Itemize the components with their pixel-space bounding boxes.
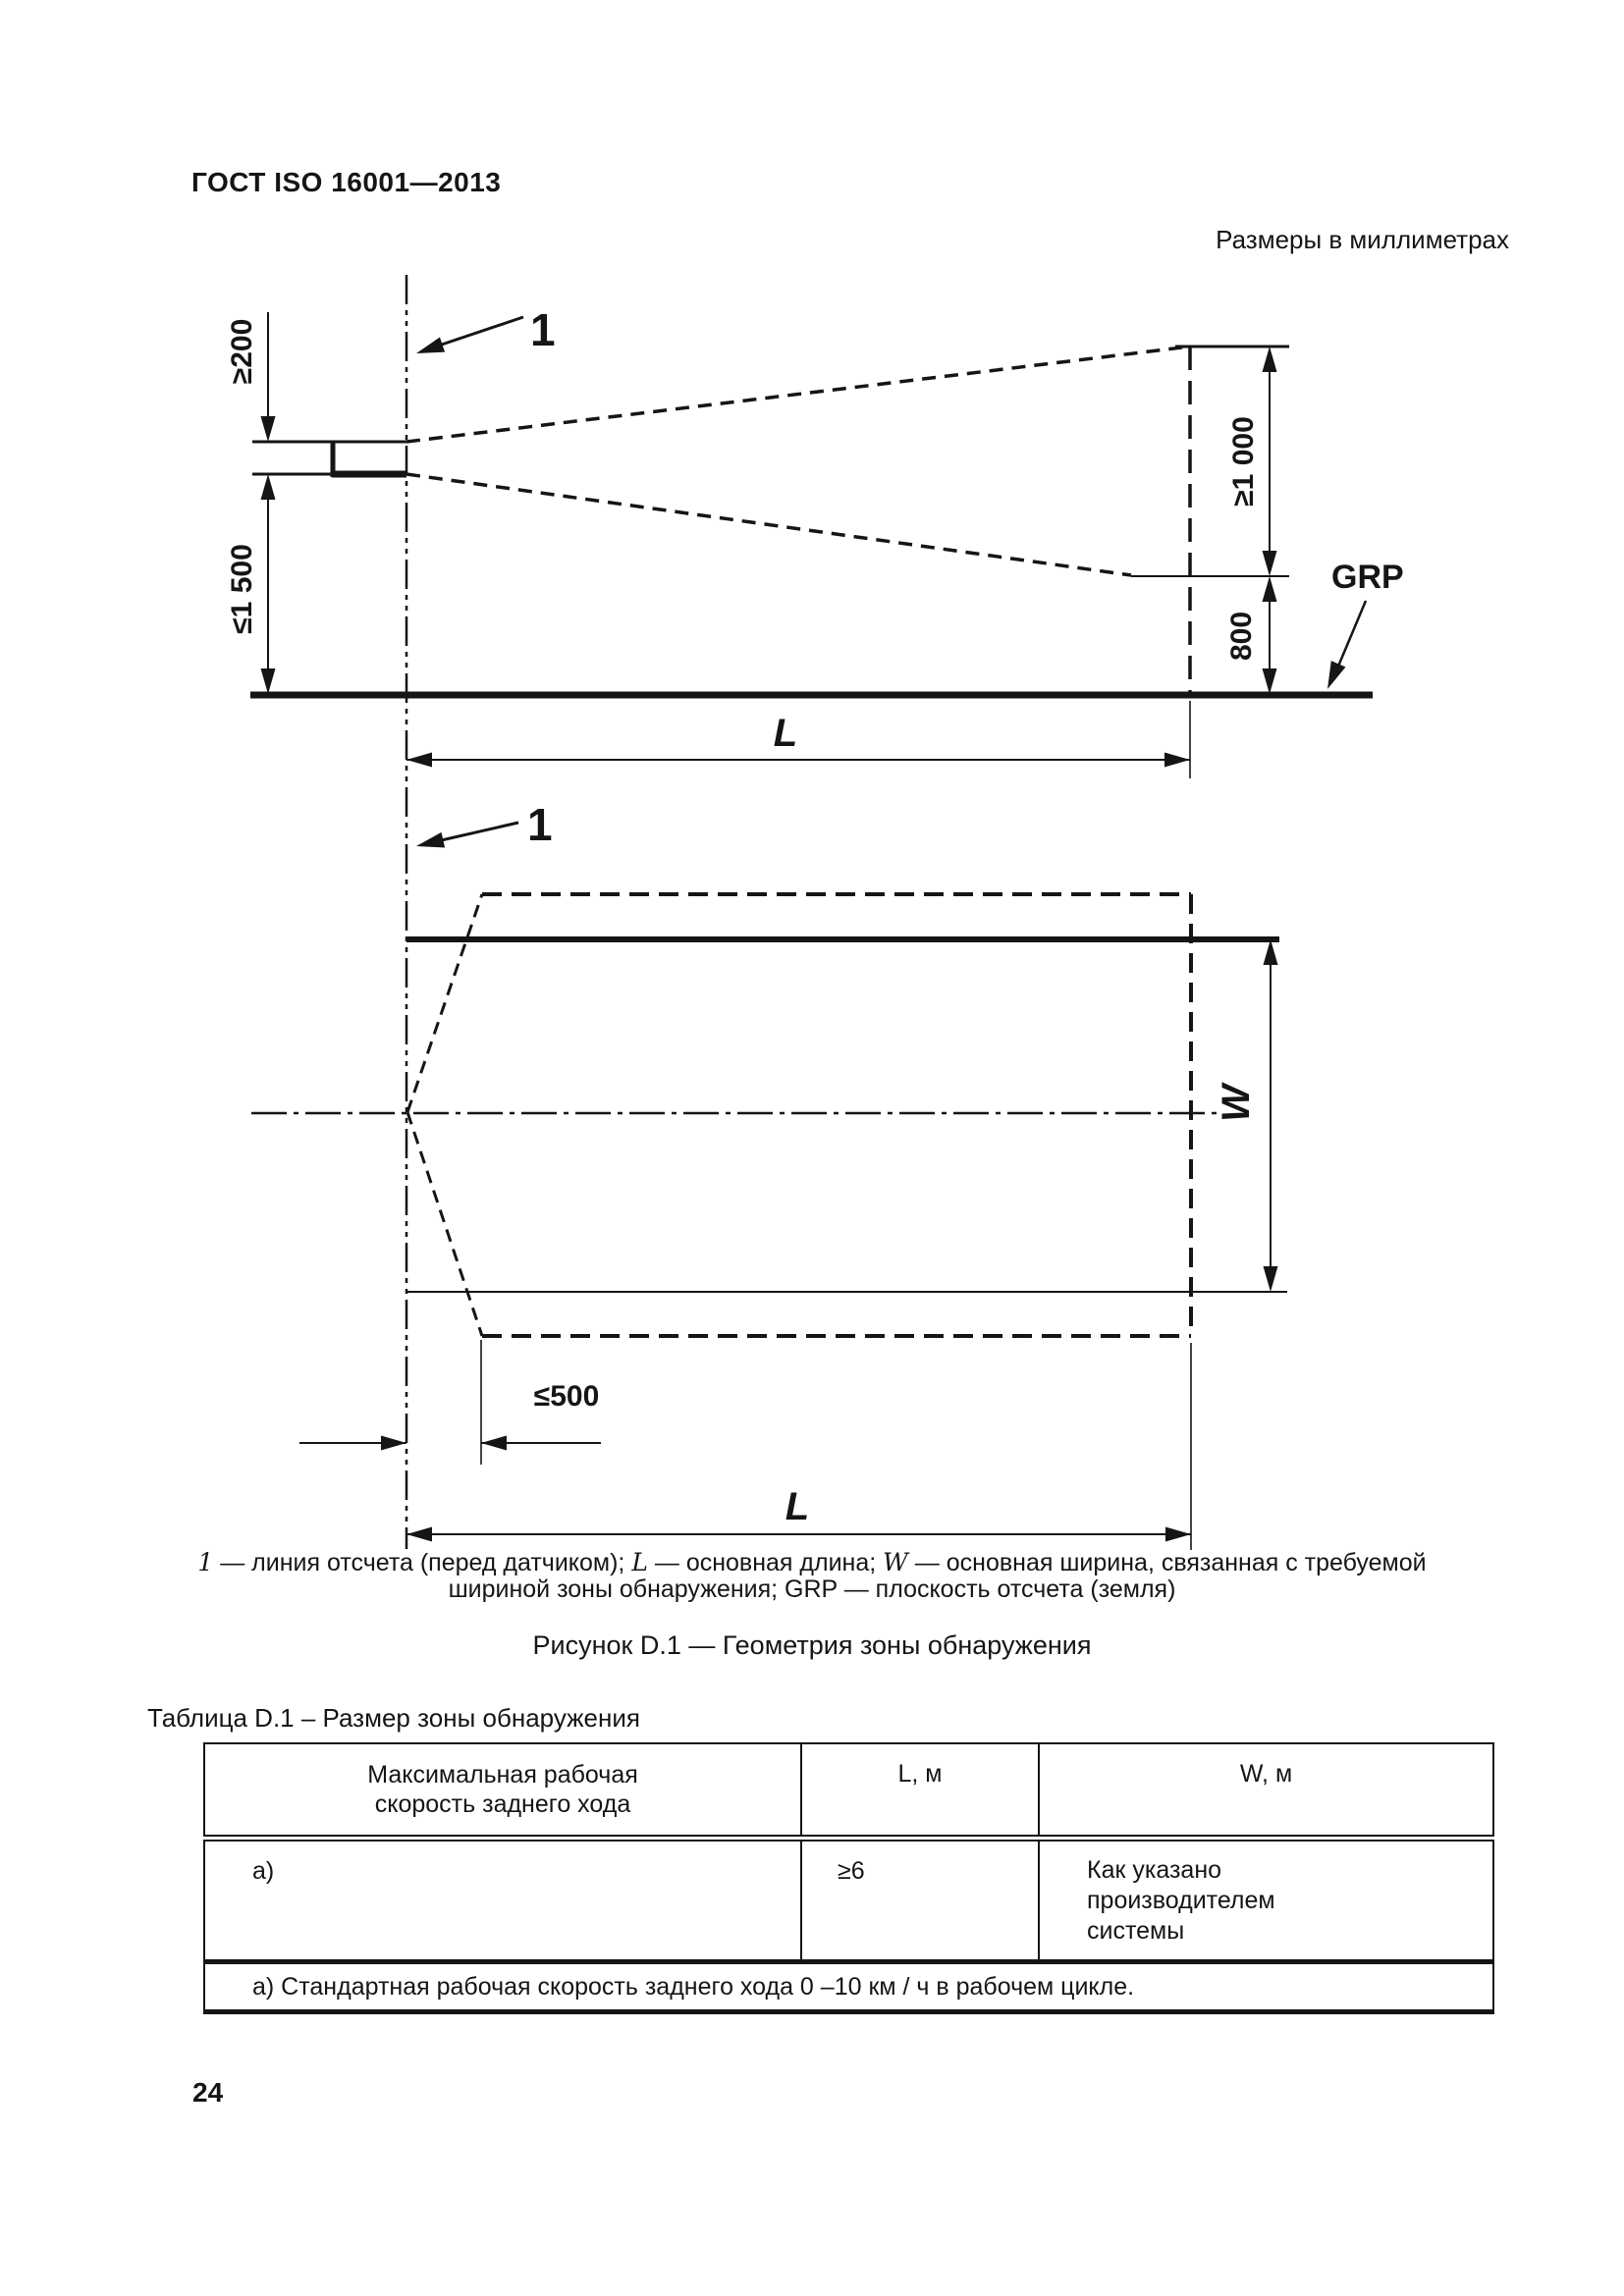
zone-plan-upper-diagonal [407,894,482,1112]
cell-length: ≥6 [801,1839,1039,1962]
arrowhead [261,416,276,442]
table-header-row: Максимальная рабочая скорость заднего хо… [204,1743,1493,1839]
table-header-speed: Максимальная рабочая скорость заднего хо… [204,1743,801,1839]
cell-width: Как указано производителем системы [1039,1839,1493,1962]
arrowhead [414,832,445,854]
arrowhead [261,474,276,500]
arrowhead [1264,1266,1278,1292]
zone-side-upper-boundary [406,347,1190,442]
arrowhead [381,1436,406,1451]
arrowhead [261,668,276,694]
table-caption: Таблица D.1 – Размер зоны обнаружения [147,1703,640,1734]
arrowhead [1263,347,1277,372]
table-footnote: а) Стандартная рабочая скорость заднего … [204,1962,1493,2012]
dim-length-bottom-label: L [785,1485,809,1528]
arrowhead [1263,576,1277,602]
key-text-2: — основная длина; [648,1549,883,1576]
arrowhead [1321,661,1346,692]
key-symbol-W: W [883,1548,908,1576]
page-number: 24 [192,2077,223,2109]
dim-800-label: 800 [1225,612,1258,661]
cell-speed: а) [204,1839,801,1962]
callout-bottom-label: 1 [527,799,553,850]
arrowhead [1263,551,1277,576]
document-page: { "page": { "standard_code": "ГОСТ ISO 1… [0,0,1624,2296]
table-row: а) ≥6 Как указано производителем системы [204,1839,1493,1962]
table-footnote-row: а) Стандартная рабочая скорость заднего … [204,1962,1493,2012]
figure-key-caption: 1 — линия отсчета (перед датчиком); L — … [164,1549,1460,1603]
arrowhead [406,753,432,768]
arrowhead [1164,753,1190,768]
key-text-1: — линия отсчета (перед датчиком); [213,1549,631,1576]
dim-500-label: ≤500 [534,1380,600,1413]
table-header-length: L, м [801,1743,1039,1839]
dim-width-label: W [1215,1082,1258,1122]
detection-zone-table: Максимальная рабочая скорость заднего хо… [203,1742,1494,2014]
arrowhead [481,1436,507,1451]
grp-label: GRP [1331,559,1404,596]
zone-side-lower-boundary [406,474,1131,575]
key-symbol-1: 1 [197,1548,213,1576]
figure-title: Рисунок D.1 — Геометрия зоны обнаружения [0,1630,1624,1661]
dim-length-top-label: L [774,712,797,755]
dim-1000-label: ≥1 000 [1227,416,1260,507]
arrowhead [406,1527,432,1542]
arrowhead [413,337,445,360]
callout-top-label: 1 [530,304,556,355]
table-header-width: W, м [1039,1743,1493,1839]
dim-1500-label: ≤1 500 [226,544,258,634]
key-symbol-L: L [631,1548,648,1576]
arrowhead [1264,939,1278,965]
dim-200-label: ≥200 [226,319,258,385]
arrowhead [1165,1527,1191,1542]
zone-plan-lower-diagonal [407,1112,482,1336]
arrowhead [1263,668,1277,694]
